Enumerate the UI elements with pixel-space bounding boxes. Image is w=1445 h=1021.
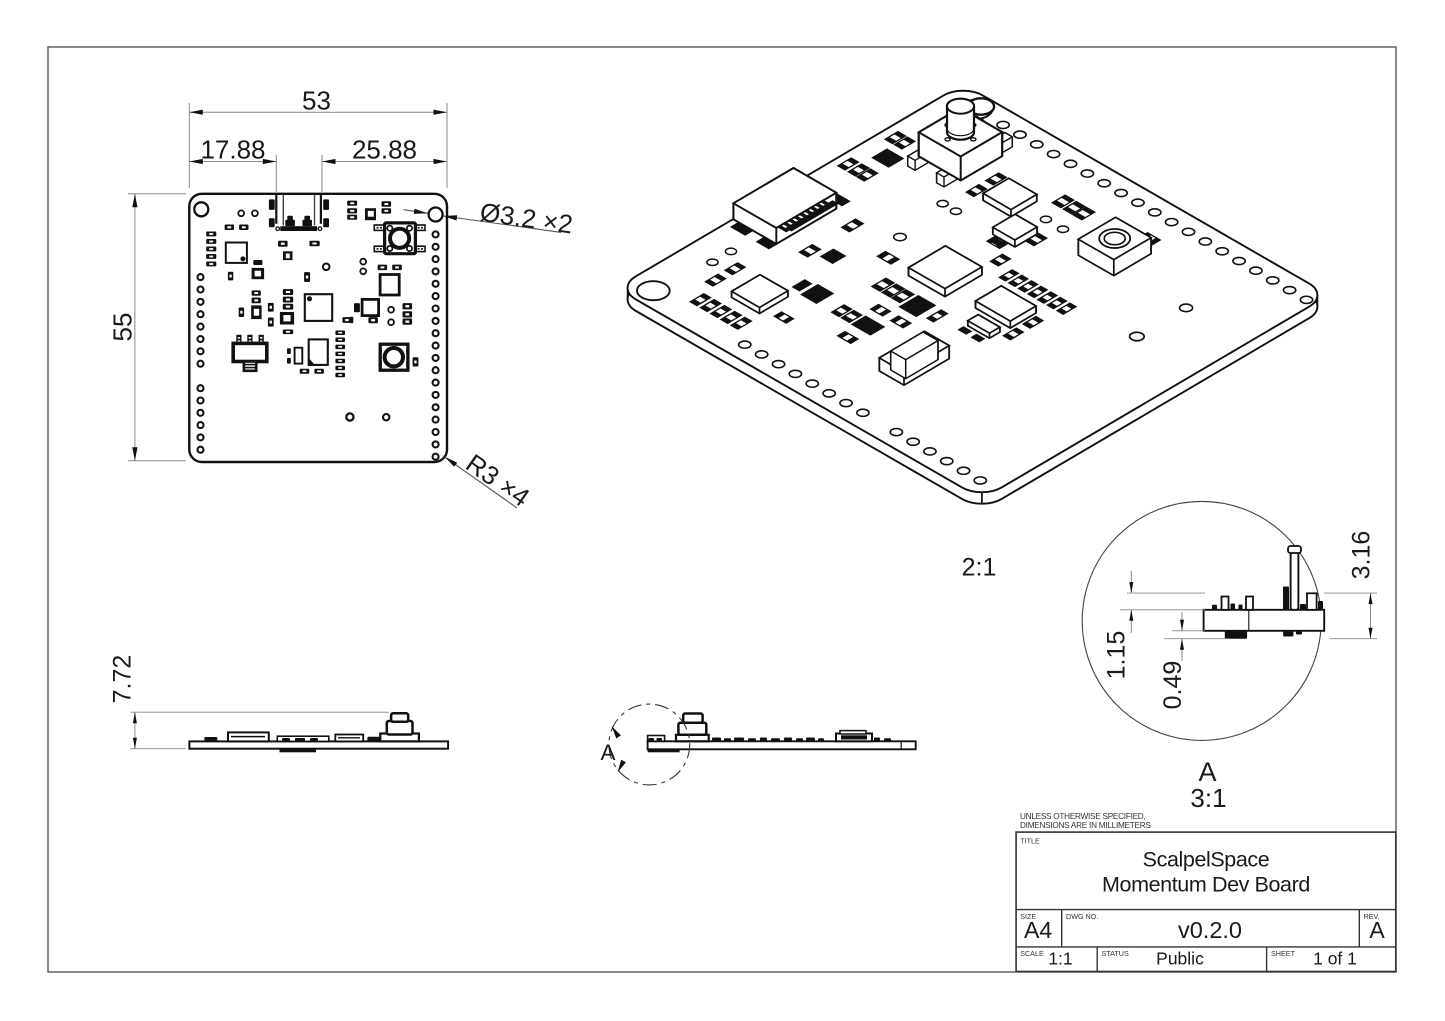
svg-text:TITLE: TITLE: [1020, 837, 1040, 846]
svg-text:2:1: 2:1: [962, 553, 997, 581]
svg-text:1:1: 1:1: [1048, 948, 1072, 968]
svg-text:53: 53: [302, 85, 331, 115]
svg-text:SCALE: SCALE: [1020, 949, 1044, 958]
svg-text:55: 55: [108, 313, 138, 342]
svg-text:DIMENSIONS ARE IN MILLIMETERS: DIMENSIONS ARE IN MILLIMETERS: [1020, 821, 1151, 830]
svg-text:A4: A4: [1024, 917, 1052, 943]
svg-text:0.49: 0.49: [1159, 661, 1187, 710]
svg-text:A: A: [1369, 917, 1385, 943]
svg-text:DWG NO.: DWG NO.: [1066, 912, 1098, 921]
svg-text:Momentum Dev Board: Momentum Dev Board: [1102, 872, 1310, 896]
svg-text:UNLESS OTHERWISE SPECIFIED,: UNLESS OTHERWISE SPECIFIED,: [1020, 812, 1146, 821]
svg-text:7.72: 7.72: [109, 655, 137, 704]
svg-text:v0.2.0: v0.2.0: [1178, 917, 1242, 943]
svg-text:A: A: [601, 740, 616, 765]
svg-text:1 of 1: 1 of 1: [1313, 948, 1357, 968]
svg-text:STATUS: STATUS: [1102, 949, 1129, 958]
svg-text:3.16: 3.16: [1348, 531, 1376, 580]
svg-text:ScalpelSpace: ScalpelSpace: [1143, 848, 1270, 872]
svg-text:3:1: 3:1: [1190, 783, 1226, 813]
svg-text:SHEET: SHEET: [1271, 949, 1296, 958]
svg-text:Public: Public: [1156, 948, 1204, 968]
svg-text:17.88: 17.88: [200, 134, 265, 164]
svg-text:25.88: 25.88: [352, 134, 417, 164]
svg-text:1.15: 1.15: [1103, 631, 1131, 680]
